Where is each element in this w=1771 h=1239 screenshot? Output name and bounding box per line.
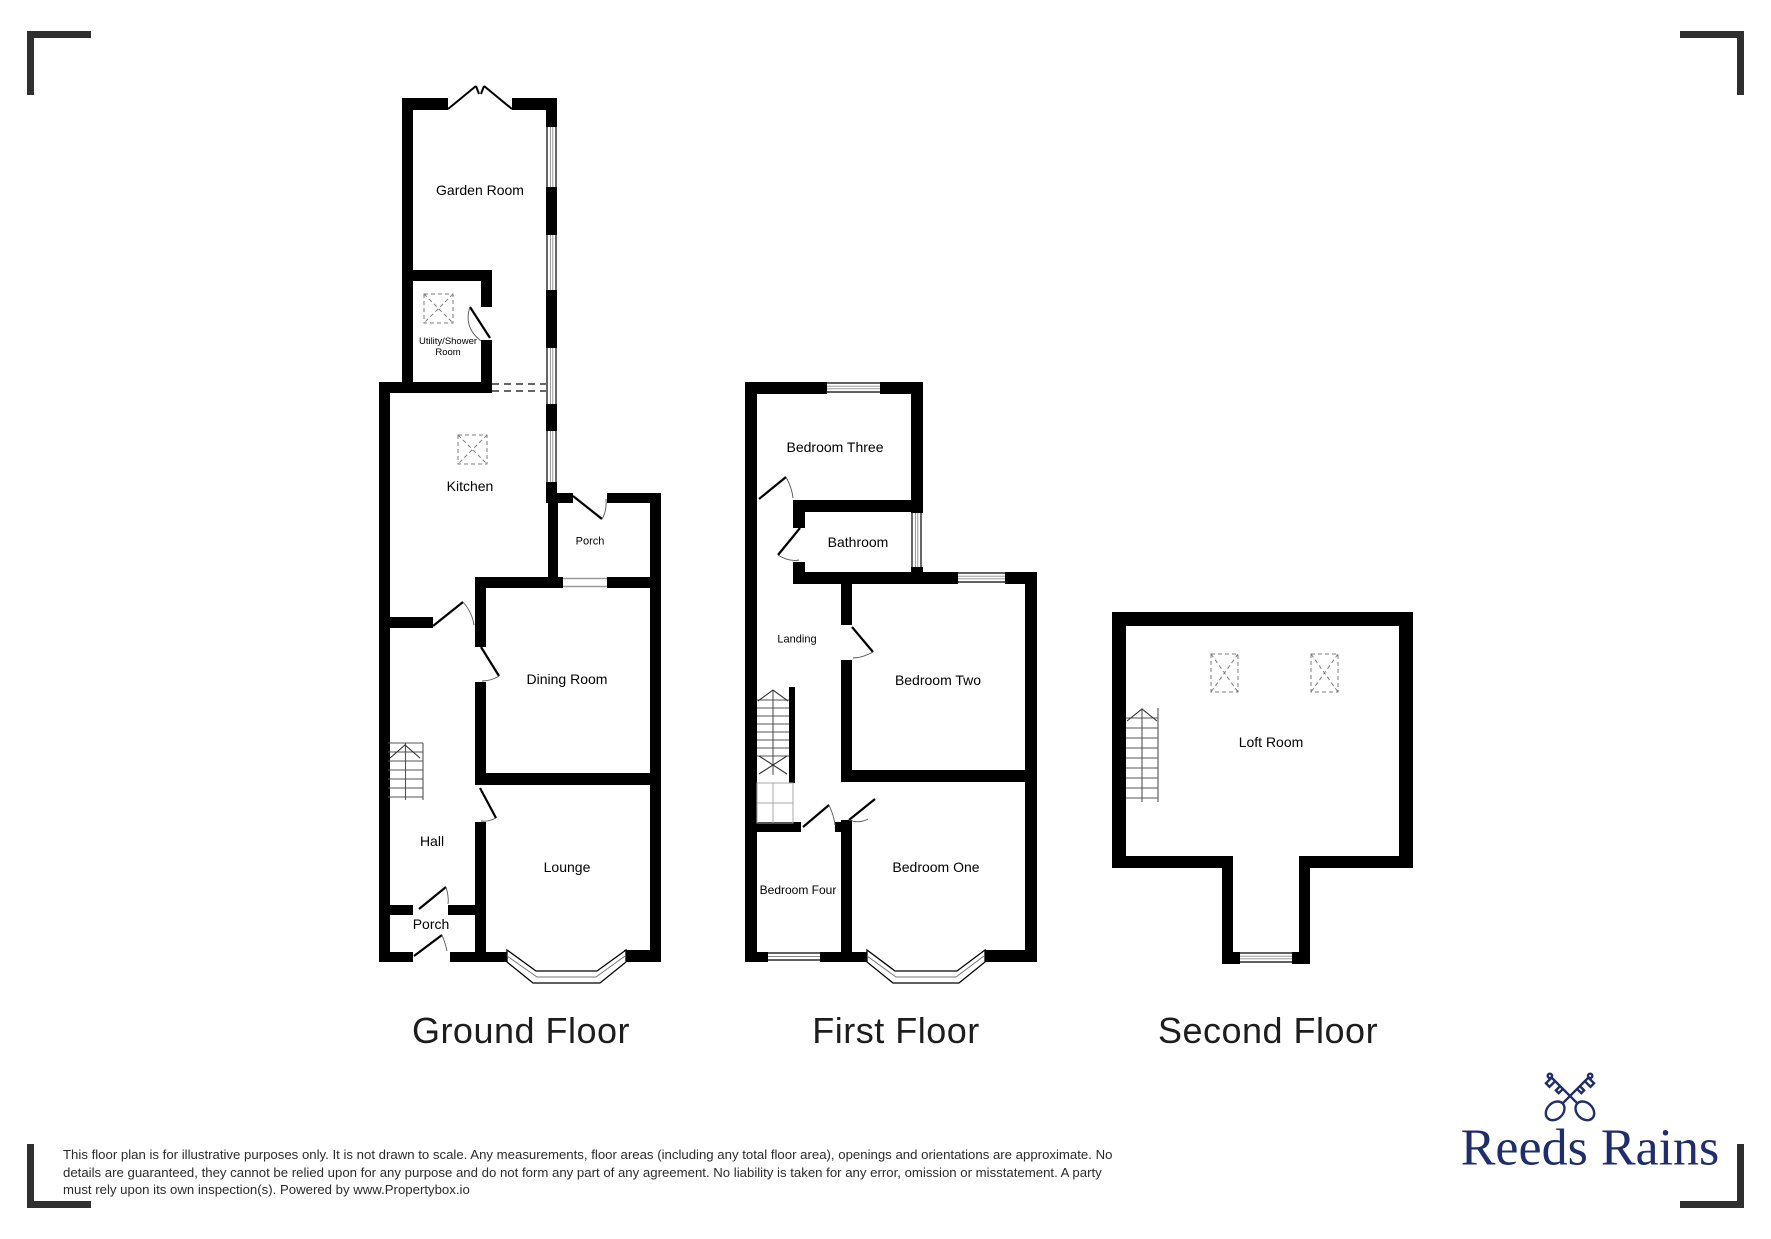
second-floor-title: Second Floor [1158,1010,1378,1052]
room-label-lounge: Lounge [544,859,591,875]
brand-name: Reeds Rains [1461,1119,1720,1178]
ground-floor-title: Ground Floor [412,1010,630,1052]
staircase [757,690,789,775]
room-label-hall: Hall [420,833,444,849]
room-label-bathroom: Bathroom [828,534,889,550]
room-label-garden-room: Garden Room [436,182,524,198]
door-leaf [448,86,512,109]
corner-mark-top-left [27,31,91,95]
room-label-utility-shower-room: Utility/Shower Room [408,337,488,359]
corner-mark-top-right [1680,31,1744,95]
room-label-bedroom-two: Bedroom Two [895,672,981,688]
understair-outline [757,783,793,823]
disclaimer-line-2: details are guaranteed, they cannot be r… [63,1164,1388,1182]
bay-window [507,950,626,983]
room-label-porch-upper: Porch [576,536,605,549]
staircase [1126,708,1158,802]
room-label-kitchen: Kitchen [447,478,494,494]
room-label-bedroom-four: Bedroom Four [760,884,837,898]
room-label-porch-lower: Porch [413,916,450,932]
room-label-bedroom-three: Bedroom Three [786,439,883,455]
first-floor-title: First Floor [812,1010,980,1052]
bay-window [867,950,985,983]
window [1240,950,1292,965]
disclaimer-line-3: must rely upon its own inspection(s). Po… [63,1181,1388,1199]
room-label-dining-room: Dining Room [527,671,608,687]
room-label-landing: Landing [777,634,816,647]
staircase [388,743,423,800]
floorplan-page: Garden Room Utility/Shower Room Kitchen … [0,0,1771,1239]
floorplan-drawing [0,0,1771,1239]
disclaimer-line-1: This floor plan is for illustrative purp… [63,1146,1388,1164]
skylight-symbol [1211,654,1338,692]
brand-logo: Reeds Rains [1455,1062,1725,1182]
second-floor-plan [1112,612,1413,965]
disclaimer-text: This floor plan is for illustrative purp… [63,1146,1388,1199]
room-label-bedroom-one: Bedroom One [892,859,979,875]
dashed-opening [492,384,546,391]
room-label-loft-room: Loft Room [1239,734,1304,750]
